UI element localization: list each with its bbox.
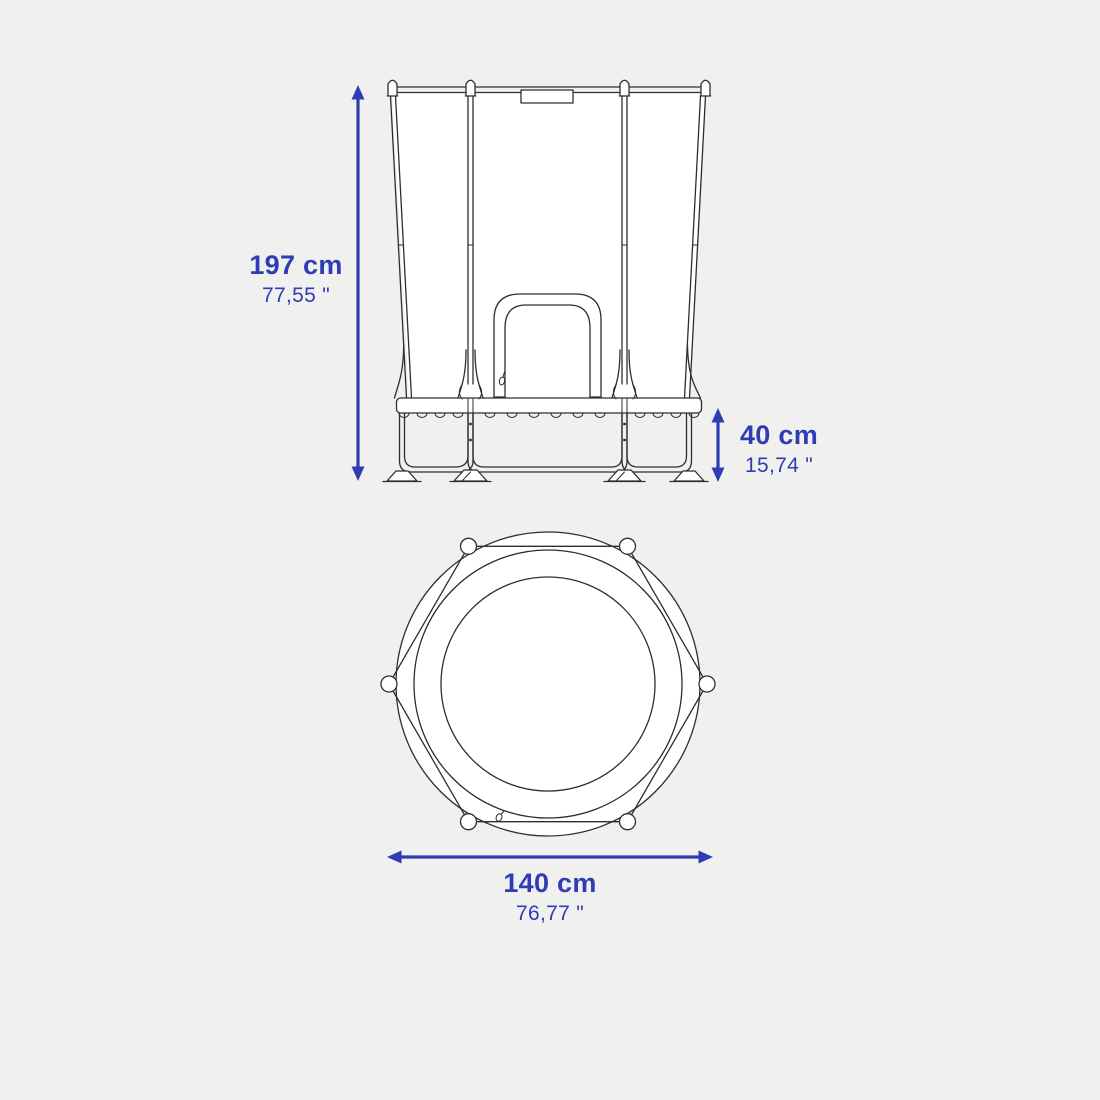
diameter-inch-value: 76,77 " — [450, 902, 650, 926]
frame-height-dimension-label: 40 cm 15,74 " — [704, 420, 854, 478]
net-panel-fill — [392, 92, 706, 398]
height-dimension-label: 197 cm 77,55 " — [196, 250, 396, 308]
diagram-line-art — [0, 0, 1100, 1100]
top-label-placard — [521, 90, 573, 103]
top-view-drawing — [381, 532, 715, 836]
frame-height-inch-value: 15,74 " — [704, 454, 854, 478]
frame-height-cm-value: 40 cm — [704, 420, 854, 450]
width-arrow — [387, 851, 713, 864]
diameter-cm-value: 140 cm — [450, 868, 650, 898]
diameter-dimension-label: 140 cm 76,77 " — [450, 868, 650, 926]
front-view-drawing — [383, 80, 711, 481]
height-cm-value: 197 cm — [196, 250, 396, 280]
spring-cover-scallops — [399, 413, 699, 418]
trampoline-dimension-diagram: 197 cm 77,55 " 40 cm 15,74 " 140 cm 76,7… — [0, 0, 1100, 1100]
legs — [400, 413, 692, 472]
height-inch-value: 77,55 " — [196, 284, 396, 308]
frame-pad — [397, 398, 702, 418]
